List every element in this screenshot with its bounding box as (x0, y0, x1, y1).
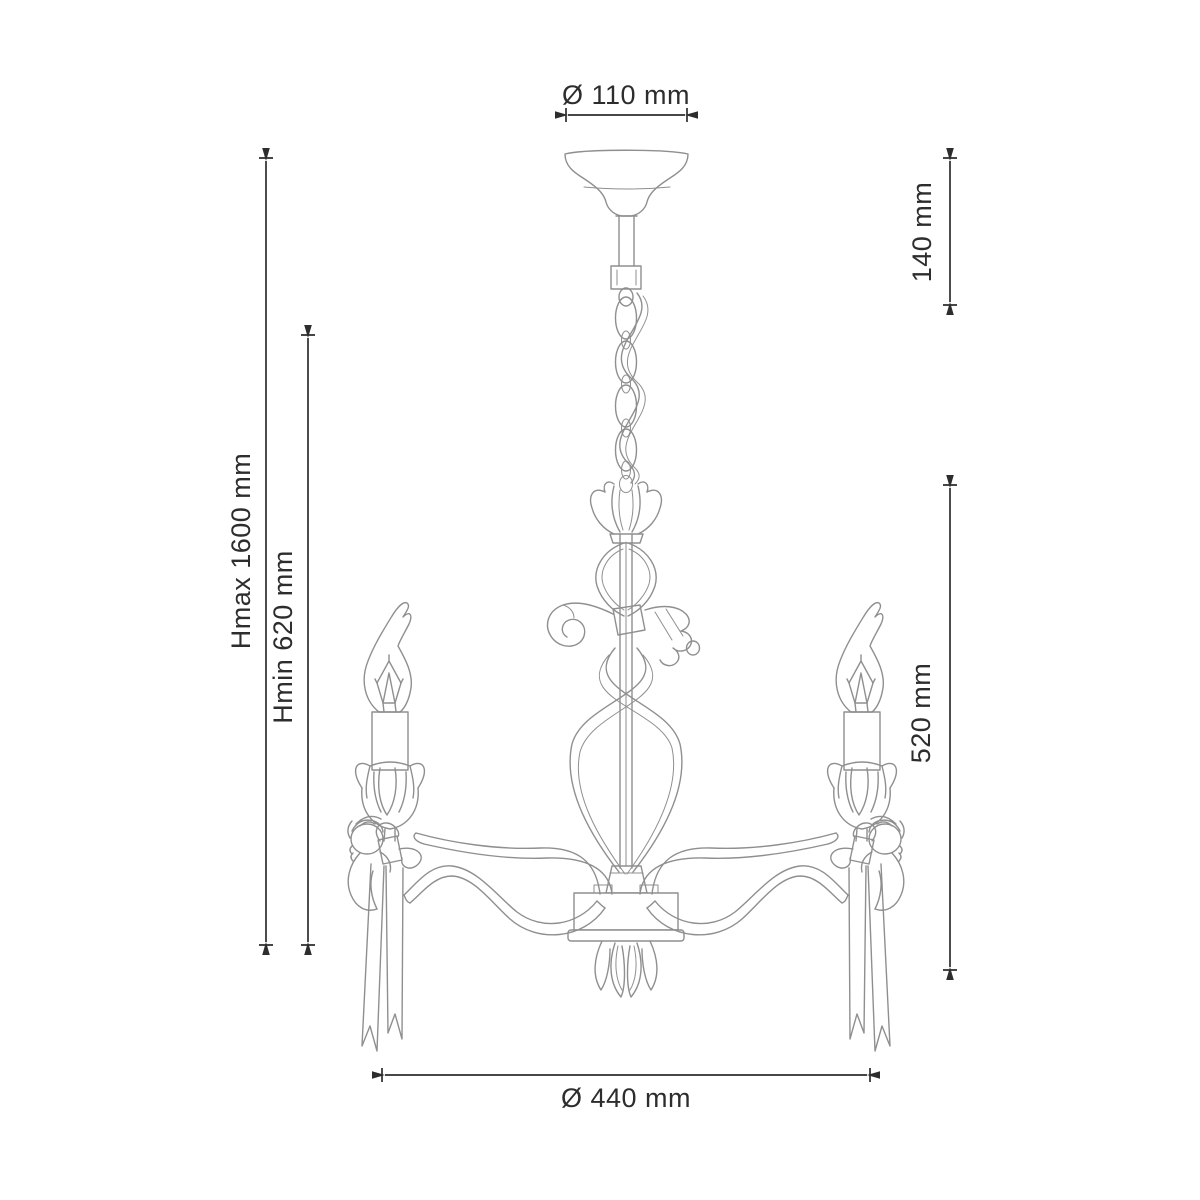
chain-connector (622, 331, 631, 349)
dim-canopy-diameter: Ø 110 mm (562, 80, 690, 122)
dim-label-min-height: Hmin 620 mm (268, 550, 298, 724)
chain-link (616, 385, 637, 427)
canopy-bell (565, 150, 688, 216)
arm-socket-right (640, 885, 658, 893)
dim-label-fixture-diameter: Ø 440 mm (561, 1083, 691, 1113)
candle-left (356, 603, 425, 841)
leaf-finial (595, 941, 657, 997)
chain-link (616, 297, 637, 339)
chandelier-outline (348, 150, 904, 1051)
drum-body (574, 893, 678, 930)
dim-min-height: Hmin 620 mm (268, 335, 315, 945)
central-column (548, 476, 700, 894)
drum-rim (568, 930, 684, 941)
chain (616, 288, 648, 484)
dim-suspension-drop: 140 mm (907, 158, 957, 305)
dimensions: Ø 110 mm 140 mm Hmax 1600 mm Hmin 620 mm… (226, 80, 957, 1113)
suspension-stem (611, 216, 641, 289)
candle-right (828, 603, 897, 841)
chain-connector (622, 375, 631, 393)
bow-curl-left (548, 603, 613, 646)
dim-max-height: Hmax 1600 mm (226, 158, 273, 945)
dim-label-max-height: Hmax 1600 mm (226, 453, 256, 650)
chandelier-technical-drawing: Ø 110 mm 140 mm Hmax 1600 mm Hmin 620 mm… (0, 0, 1200, 1200)
dim-label-fixture-height: 520 mm (906, 663, 936, 764)
arm-socket-left (594, 885, 612, 893)
bow-curl-right (645, 607, 691, 666)
ribbon-bow-center (548, 603, 700, 665)
chain-link (616, 341, 637, 383)
collar-detail (617, 270, 636, 285)
dim-label-canopy-diameter: Ø 110 mm (562, 80, 690, 110)
dim-label-suspension-drop: 140 mm (907, 182, 937, 283)
dim-fixture-diameter: Ø 440 mm (382, 1068, 870, 1113)
stem-rod (616, 216, 637, 266)
dim-fixture-height: 520 mm (906, 485, 957, 970)
drawing-canvas: Ø 110 mm 140 mm Hmax 1600 mm Hmin 620 mm… (0, 0, 1200, 1200)
tulip-ornament (591, 476, 662, 544)
ceiling-canopy (565, 150, 688, 216)
